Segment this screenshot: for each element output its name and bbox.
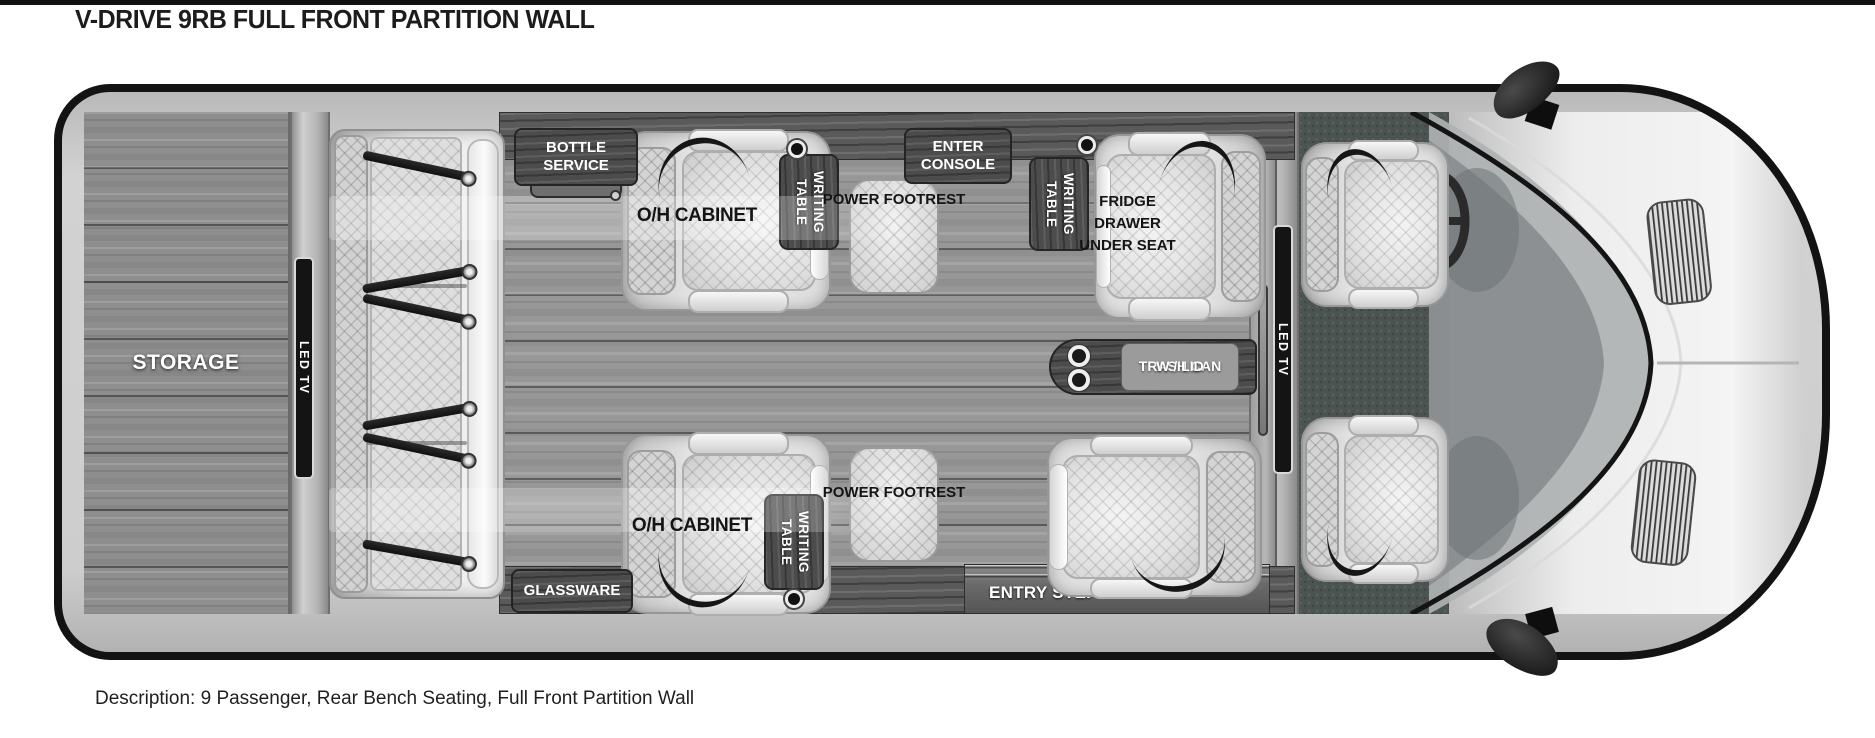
glassware-cabinet: GLASSWARE	[511, 569, 633, 613]
seat-armrest	[1348, 288, 1419, 309]
seat-armrest	[688, 290, 789, 313]
hood-vent	[1646, 198, 1712, 305]
trash-can-label-line2: W / LID	[1156, 357, 1203, 377]
cup-holder	[1068, 345, 1090, 367]
bench-front-bolster	[467, 139, 499, 589]
storage-compartment: STORAGE	[84, 112, 290, 614]
front-led-tv-label: LED TV	[1276, 323, 1290, 376]
wall-fixture-bolt	[1078, 136, 1096, 154]
van-body-outline: STORAGE LED TV	[54, 84, 1830, 660]
bottle-service-tray	[530, 184, 622, 198]
enter-console-label: ENTER CONSOLE	[906, 138, 1010, 174]
power-footrest-bottom-label: POWER FOOTREST	[819, 484, 969, 503]
wall-fixture-bolt	[785, 590, 803, 608]
page-title: V-DRIVE 9RB FULL FRONT PARTITION WALL	[75, 4, 594, 35]
floorplan-page: V-DRIVE 9RB FULL FRONT PARTITION WALL ST…	[0, 0, 1875, 738]
seat-armrest	[688, 432, 789, 455]
rear-led-tv: LED TV	[296, 259, 312, 477]
front-led-tv: LED TV	[1275, 227, 1291, 472]
bottle-service-cabinet: BOTTLE SERVICE	[514, 128, 638, 186]
writing-table-bottom: WRITING TABLE	[764, 494, 824, 590]
writing-table-label: WRITING TABLE	[777, 496, 811, 588]
bottle-service-label: BOTTLE SERVICE	[516, 139, 636, 175]
seat-armrest	[1128, 297, 1211, 321]
fridge-drawer-label: FRIDGE DRAWER UNDER SEAT	[1070, 191, 1185, 256]
passenger-seat-bottom-right	[1047, 437, 1262, 597]
seat-armrest	[1348, 415, 1419, 436]
oh-cabinet-bottom-label: O/H CABINET	[602, 514, 782, 538]
driver-seat	[1301, 142, 1449, 307]
seat-front-bolster	[1049, 464, 1068, 570]
rear-led-tv-label: LED TV	[297, 341, 311, 394]
hood-vent	[1630, 459, 1696, 566]
storage-label: STORAGE	[133, 351, 240, 375]
seat-armrest	[1090, 435, 1193, 456]
glassware-label: GLASSWARE	[524, 582, 621, 600]
enter-console-cabinet: ENTER CONSOLE	[904, 128, 1012, 184]
bench-cushion	[370, 137, 462, 591]
description-text: Description: 9 Passenger, Rear Bench Sea…	[95, 688, 694, 710]
oh-cabinet-top-label: O/H CABINET	[607, 204, 787, 228]
front-passenger-seat	[1301, 417, 1449, 582]
cup-holder	[1068, 369, 1090, 391]
rear-bench-seat	[329, 129, 505, 599]
power-footrest-bottom	[849, 447, 939, 562]
power-footrest-top-label: POWER FOOTREST	[819, 191, 969, 210]
trash-can-label: TRASH CAN W / LID	[1121, 343, 1239, 391]
bottle-service-knob	[610, 190, 621, 201]
bench-backrest	[334, 135, 368, 593]
wall-fixture-bolt	[788, 140, 806, 158]
